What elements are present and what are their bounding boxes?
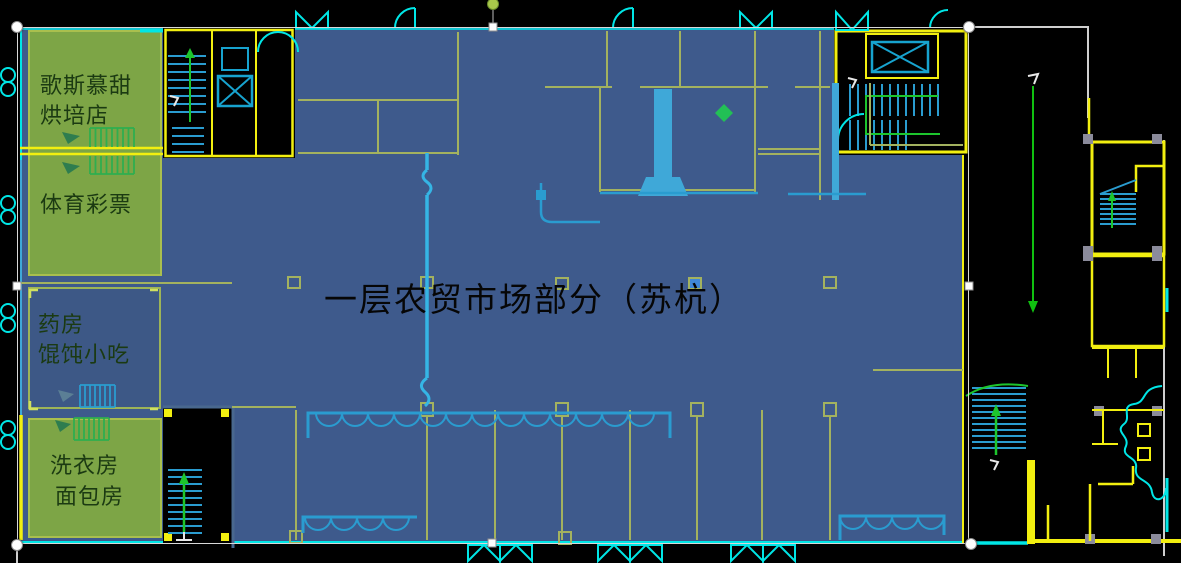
axis-bubble-icons [1, 68, 15, 449]
resize-handle-bottom-right[interactable] [965, 538, 977, 550]
bottom-double-door-icons [468, 545, 795, 561]
stairwell-bottomleft [163, 407, 233, 563]
stair-symbol-midleft [55, 385, 115, 440]
stall-counter-icons [303, 413, 944, 540]
pharmacy-corner-brackets [30, 290, 158, 409]
resize-handle-top-center[interactable] [489, 23, 498, 32]
resize-handle-top-right[interactable] [963, 21, 975, 33]
cad-floorplan-viewport: 歌斯慕甜 烘培店 体育彩票 药房 馄饨小吃 洗衣房 面包房 [0, 0, 1181, 563]
stairwell-topleft [163, 28, 298, 158]
resize-handle-middle-left[interactable] [13, 282, 22, 291]
resize-handle-middle-right[interactable] [965, 282, 974, 291]
right-wing-rooms [1027, 134, 1181, 544]
resize-handle-top-left[interactable] [11, 21, 23, 33]
corridor-walls [421, 83, 866, 406]
floor-title-text[interactable]: 一层农贸市场部分（苏杭） [324, 283, 744, 316]
resize-handle-bottom-left[interactable] [11, 539, 23, 551]
stair-symbol-bakery [20, 128, 163, 174]
plant-symbol-icon [715, 104, 733, 122]
fixture-outline-icon [1121, 386, 1166, 499]
resize-handle-bottom-center[interactable] [488, 539, 497, 548]
stairwell-topright [834, 28, 970, 155]
stair-icon [1100, 180, 1136, 228]
route-arrow-line [1028, 74, 1038, 313]
escalator-icon [966, 384, 1028, 470]
top-double-door-icons [296, 8, 948, 30]
